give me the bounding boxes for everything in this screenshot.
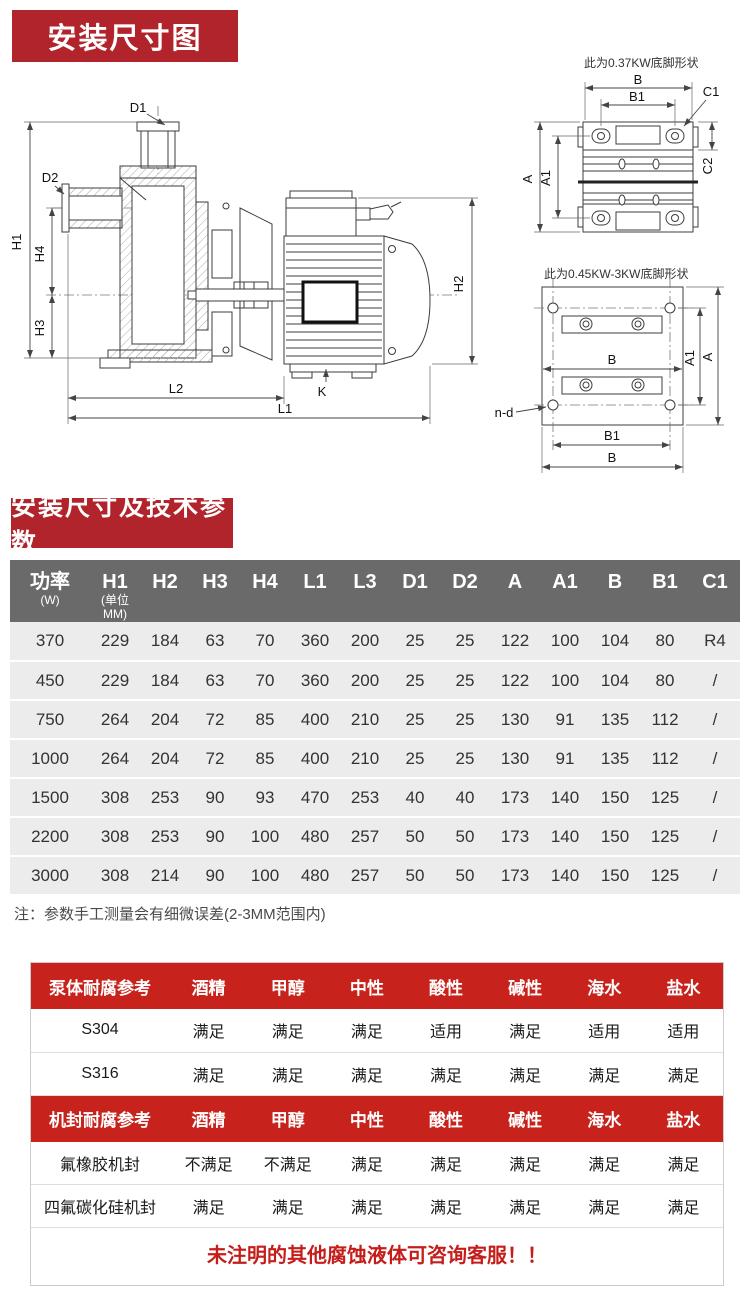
- dim-label-c2: C2: [700, 158, 715, 175]
- table-cell: 122: [490, 661, 540, 700]
- table-cell: 214: [140, 856, 190, 895]
- table-cell: 173: [490, 778, 540, 817]
- table-cell: 72: [190, 739, 240, 778]
- dim-label-b-bottom: B: [608, 450, 617, 465]
- table-cell: 125: [640, 817, 690, 856]
- table-cell: 25: [440, 622, 490, 661]
- pump-body-corrosion-header-row: 泵体耐腐参考 酒精 甲醇 中性 酸性 碱性 海水 盐水: [31, 963, 723, 1009]
- table-cell: 满足: [406, 1052, 485, 1095]
- spec-header-d1: D1: [390, 560, 440, 622]
- dim-label-b1-bottom: B1: [604, 428, 620, 443]
- table-cell: 150: [590, 778, 640, 817]
- table-cell: 90: [190, 778, 240, 817]
- table-cell: 满足: [248, 1185, 327, 1228]
- table-cell: 229: [90, 661, 140, 700]
- table-cell: 112: [640, 700, 690, 739]
- table-cell: 满足: [644, 1185, 723, 1228]
- table-cell: 93: [240, 778, 290, 817]
- corrosion-header-saltwater: 盐水: [644, 963, 723, 1009]
- table-row: 4502291846370360200252512210010480/: [10, 661, 740, 700]
- table-cell: 150: [590, 817, 640, 856]
- table-cell: 满足: [565, 1185, 644, 1228]
- spec-header-h2: H2: [140, 560, 190, 622]
- spec-header-row: 功率(W) H1(单位MM) H2 H3 H4 L1 L3 D1 D2 A A1…: [10, 560, 740, 622]
- table-cell: 氟橡胶机封: [31, 1142, 169, 1185]
- table-cell: 135: [590, 739, 640, 778]
- table-row: S304满足满足满足适用满足适用适用: [31, 1009, 723, 1052]
- corrosion-header-alkali: 碱性: [486, 963, 565, 1009]
- seal-header-acid: 酸性: [406, 1096, 485, 1142]
- dim-label-h1: H1: [9, 234, 24, 251]
- seal-corrosion-table: 机封耐腐参考 酒精 甲醇 中性 酸性 碱性 海水 盐水 氟橡胶机封不满足不满足满…: [31, 1096, 723, 1229]
- table-cell: 72: [190, 700, 240, 739]
- spec-header-l1: L1: [290, 560, 340, 622]
- table-cell: 104: [590, 622, 640, 661]
- seal-corrosion-header-row: 机封耐腐参考 酒精 甲醇 中性 酸性 碱性 海水 盐水: [31, 1096, 723, 1142]
- table-cell: 100: [240, 817, 290, 856]
- table-cell: 229: [90, 622, 140, 661]
- table-cell: 470: [290, 778, 340, 817]
- table-cell: 不满足: [169, 1142, 248, 1185]
- spec-header-c1: C1: [690, 560, 740, 622]
- table-row: 7502642047285400210252513091135112/: [10, 700, 740, 739]
- seal-header-alcohol: 酒精: [169, 1096, 248, 1142]
- corrosion-header-pump-body: 泵体耐腐参考: [31, 963, 169, 1009]
- table-cell: S316: [31, 1052, 169, 1095]
- spec-header-h3: H3: [190, 560, 240, 622]
- table-cell: 满足: [327, 1052, 406, 1095]
- dim-label-h4: H4: [32, 246, 47, 263]
- table-cell: 适用: [406, 1009, 485, 1052]
- corrosion-header-seawater: 海水: [565, 963, 644, 1009]
- table-cell: 112: [640, 739, 690, 778]
- table-cell: 173: [490, 817, 540, 856]
- table-cell: 满足: [169, 1185, 248, 1228]
- table-row: 3702291846370360200252512210010480R4: [10, 622, 740, 661]
- table-cell: 满足: [169, 1009, 248, 1052]
- table-cell: /: [690, 817, 740, 856]
- table-cell: 满足: [486, 1009, 565, 1052]
- dim-label-b-mid: B: [608, 352, 617, 367]
- pump-dimension-drawing: H1 H4 H3 H2 L2 L1 K D1 D2: [0, 60, 750, 480]
- table-cell: 100: [240, 856, 290, 895]
- table-cell: 200: [340, 661, 390, 700]
- dim-label-n-d: n-d: [495, 405, 514, 420]
- table-cell: 25: [440, 700, 490, 739]
- table-cell: 25: [390, 661, 440, 700]
- dim-label-b-top: B: [634, 72, 643, 87]
- table-cell: 210: [340, 739, 390, 778]
- table-cell: 308: [90, 856, 140, 895]
- table-cell: 满足: [327, 1009, 406, 1052]
- table-cell: 253: [140, 778, 190, 817]
- table-cell: 450: [10, 661, 90, 700]
- table-cell: 130: [490, 739, 540, 778]
- spec-header-l3: L3: [340, 560, 390, 622]
- table-cell: 满足: [406, 1185, 485, 1228]
- table-cell: 50: [440, 817, 490, 856]
- dim-label-c1: C1: [703, 84, 720, 99]
- table-cell: 125: [640, 778, 690, 817]
- table-cell: /: [690, 739, 740, 778]
- dim-label-k: K: [318, 384, 327, 399]
- table-cell: 200: [340, 622, 390, 661]
- table-cell: /: [690, 778, 740, 817]
- dim-label-a1-right: A1: [682, 350, 697, 366]
- dim-label-d1: D1: [130, 100, 147, 115]
- table-cell: 满足: [644, 1052, 723, 1095]
- table-cell: 63: [190, 661, 240, 700]
- table-cell: 1000: [10, 739, 90, 778]
- table-cell: 308: [90, 778, 140, 817]
- spec-header-a1: A1: [540, 560, 590, 622]
- table-cell: 100: [540, 622, 590, 661]
- table-cell: 257: [340, 817, 390, 856]
- table-cell: 264: [90, 739, 140, 778]
- foot-view-037kw: B B1 C1 A A1 C2: [520, 72, 719, 232]
- table-cell: 125: [640, 856, 690, 895]
- table-cell: 140: [540, 817, 590, 856]
- foot-view-045-3kw: B A1 A n-d B1 B: [495, 278, 724, 473]
- pump-body-corrosion-table: 泵体耐腐参考 酒精 甲醇 中性 酸性 碱性 海水 盐水 S304满足满足满足适用…: [31, 963, 723, 1096]
- table-cell: /: [690, 661, 740, 700]
- section-title-installation-diagram: 安装尺寸图: [12, 10, 238, 62]
- section-title-installation-specs: 安装尺寸及技术参数: [11, 498, 233, 548]
- table-cell: 135: [590, 700, 640, 739]
- spec-header-h4: H4: [240, 560, 290, 622]
- dim-label-d2: D2: [42, 170, 59, 185]
- table-cell: 480: [290, 817, 340, 856]
- spec-header-b: B: [590, 560, 640, 622]
- table-cell: 90: [190, 856, 240, 895]
- seal-header-methanol: 甲醇: [248, 1096, 327, 1142]
- seal-header-alkali: 碱性: [486, 1096, 565, 1142]
- table-cell: 400: [290, 739, 340, 778]
- table-cell: 2200: [10, 817, 90, 856]
- table-cell: 85: [240, 739, 290, 778]
- table-cell: /: [690, 856, 740, 895]
- table-cell: 50: [390, 856, 440, 895]
- table-cell: 25: [440, 739, 490, 778]
- table-cell: 不满足: [248, 1142, 327, 1185]
- table-cell: 满足: [169, 1052, 248, 1095]
- corrosion-header-acid: 酸性: [406, 963, 485, 1009]
- table-cell: 70: [240, 661, 290, 700]
- spec-header-a: A: [490, 560, 540, 622]
- table-cell: 25: [440, 661, 490, 700]
- dim-label-b1-top: B1: [629, 89, 645, 104]
- dim-label-l1: L1: [278, 401, 292, 416]
- table-row: 3000308214901004802575050173140150125/: [10, 856, 740, 895]
- table-cell: R4: [690, 622, 740, 661]
- dim-label-l2: L2: [169, 381, 183, 396]
- table-cell: 80: [640, 661, 690, 700]
- table-cell: 480: [290, 856, 340, 895]
- table-row: 氟橡胶机封不满足不满足满足满足满足满足满足: [31, 1142, 723, 1185]
- table-cell: 91: [540, 700, 590, 739]
- seal-header-saltwater: 盐水: [644, 1096, 723, 1142]
- table-cell: 750: [10, 700, 90, 739]
- table-cell: 140: [540, 778, 590, 817]
- table-cell: 50: [440, 856, 490, 895]
- table-cell: 360: [290, 622, 340, 661]
- table-cell: 204: [140, 739, 190, 778]
- table-cell: 适用: [644, 1009, 723, 1052]
- table-cell: 140: [540, 856, 590, 895]
- table-cell: 184: [140, 622, 190, 661]
- table-cell: 满足: [565, 1142, 644, 1185]
- seal-header-seawater: 海水: [565, 1096, 644, 1142]
- table-cell: 173: [490, 856, 540, 895]
- table-cell: 91: [540, 739, 590, 778]
- table-row: S316满足满足满足满足满足满足满足: [31, 1052, 723, 1095]
- table-cell: 25: [390, 739, 440, 778]
- spec-header-power: 功率(W): [10, 560, 90, 622]
- corrosion-header-methanol: 甲醇: [248, 963, 327, 1009]
- table-cell: 四氟碳化硅机封: [31, 1185, 169, 1228]
- table-row: 2200308253901004802575050173140150125/: [10, 817, 740, 856]
- table-cell: 80: [640, 622, 690, 661]
- table-cell: 40: [390, 778, 440, 817]
- table-cell: 40: [440, 778, 490, 817]
- table-cell: 85: [240, 700, 290, 739]
- table-cell: 满足: [327, 1142, 406, 1185]
- table-cell: 1500: [10, 778, 90, 817]
- table-cell: 满足: [486, 1185, 565, 1228]
- table-cell: 满足: [327, 1185, 406, 1228]
- dim-label-a-top: A: [520, 174, 535, 183]
- table-cell: 70: [240, 622, 290, 661]
- dim-label-h3: H3: [32, 320, 47, 337]
- table-cell: 360: [290, 661, 340, 700]
- table-cell: 25: [390, 700, 440, 739]
- corrosion-reference-block: 泵体耐腐参考 酒精 甲醇 中性 酸性 碱性 海水 盐水 S304满足满足满足适用…: [30, 962, 724, 1286]
- table-cell: 130: [490, 700, 540, 739]
- table-cell: 满足: [486, 1142, 565, 1185]
- product-spec-page: 安装尺寸图 此为0.37KW底脚形状 此为0.45KW-3KW底脚形状: [0, 0, 750, 1312]
- dim-label-h2: H2: [451, 276, 466, 293]
- table-cell: 184: [140, 661, 190, 700]
- footer-notice: 未注明的其他腐蚀液体可咨询客服！！: [31, 1228, 723, 1285]
- dim-label-a1-top: A1: [538, 170, 553, 186]
- table-cell: 257: [340, 856, 390, 895]
- corrosion-header-neutral: 中性: [327, 963, 406, 1009]
- table-cell: /: [690, 700, 740, 739]
- table-cell: 204: [140, 700, 190, 739]
- spec-header-b1: B1: [640, 560, 690, 622]
- table-cell: 50: [390, 817, 440, 856]
- table-cell: S304: [31, 1009, 169, 1052]
- seal-header-title: 机封耐腐参考: [31, 1096, 169, 1142]
- table-cell: 253: [140, 817, 190, 856]
- dim-label-a-right: A: [700, 352, 715, 361]
- table-cell: 122: [490, 622, 540, 661]
- measurement-note: 注：参数手工测量会有细微误差(2-3MM范围内): [14, 903, 326, 924]
- table-cell: 104: [590, 661, 640, 700]
- table-cell: 90: [190, 817, 240, 856]
- table-cell: 150: [590, 856, 640, 895]
- table-cell: 25: [390, 622, 440, 661]
- table-cell: 满足: [248, 1052, 327, 1095]
- table-cell: 满足: [644, 1142, 723, 1185]
- spec-header-h1: H1(单位MM): [90, 560, 140, 622]
- table-cell: 适用: [565, 1009, 644, 1052]
- pump-cross-section: H1 H4 H3 H2 L2 L1 K D1 D2: [9, 100, 478, 424]
- table-cell: 满足: [248, 1009, 327, 1052]
- table-cell: 3000: [10, 856, 90, 895]
- table-cell: 100: [540, 661, 590, 700]
- table-cell: 满足: [406, 1142, 485, 1185]
- corrosion-header-alcohol: 酒精: [169, 963, 248, 1009]
- table-row: 10002642047285400210252513091135112/: [10, 739, 740, 778]
- table-cell: 253: [340, 778, 390, 817]
- seal-header-neutral: 中性: [327, 1096, 406, 1142]
- table-row: 四氟碳化硅机封满足满足满足满足满足满足满足: [31, 1185, 723, 1228]
- dimension-spec-table: 功率(W) H1(单位MM) H2 H3 H4 L1 L3 D1 D2 A A1…: [10, 560, 740, 896]
- spec-header-d2: D2: [440, 560, 490, 622]
- table-cell: 400: [290, 700, 340, 739]
- table-cell: 210: [340, 700, 390, 739]
- table-cell: 63: [190, 622, 240, 661]
- table-cell: 满足: [486, 1052, 565, 1095]
- table-cell: 满足: [565, 1052, 644, 1095]
- table-cell: 308: [90, 817, 140, 856]
- table-cell: 370: [10, 622, 90, 661]
- table-row: 150030825390934702534040173140150125/: [10, 778, 740, 817]
- table-cell: 264: [90, 700, 140, 739]
